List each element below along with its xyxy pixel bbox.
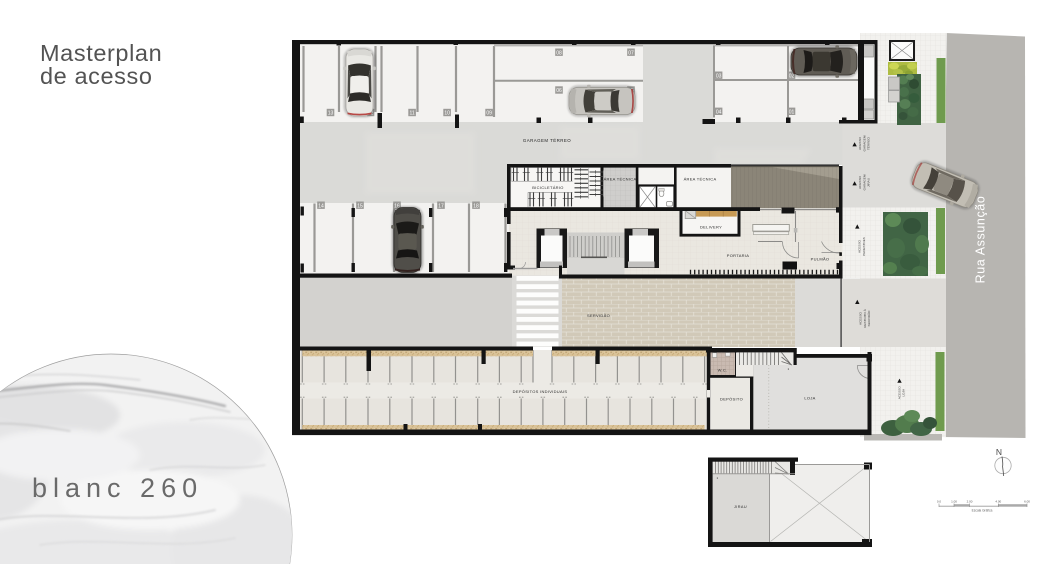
svg-text:Rua Assunção: Rua Assunção bbox=[974, 196, 988, 284]
svg-text:07: 07 bbox=[628, 50, 634, 56]
svg-text:11: 11 bbox=[409, 111, 414, 117]
svg-text:18: 18 bbox=[473, 203, 479, 209]
svg-text:17: 17 bbox=[438, 203, 444, 209]
svg-text:TÉRREO: TÉRREO bbox=[866, 136, 871, 149]
svg-text:SERVIDÃO: SERVIDÃO bbox=[587, 313, 610, 318]
svg-text:LOJA: LOJA bbox=[902, 388, 906, 397]
svg-text:14: 14 bbox=[318, 203, 324, 209]
svg-text:PORTARIA: PORTARIA bbox=[727, 253, 750, 258]
svg-text:SERVIDÃO: SERVIDÃO bbox=[866, 310, 871, 327]
svg-text:04: 04 bbox=[716, 109, 722, 115]
svg-text:ÁREA TÉCNICA: ÁREA TÉCNICA bbox=[604, 177, 637, 182]
svg-text:DEPÓSITO: DEPÓSITO bbox=[720, 397, 743, 402]
svg-text:GARAGEM TÉRREO: GARAGEM TÉRREO bbox=[523, 138, 571, 143]
svg-text:JIRAU: JIRAU bbox=[734, 505, 747, 509]
svg-text:JIRAU: JIRAU bbox=[867, 178, 871, 187]
svg-text:0.0: 0.0 bbox=[937, 500, 942, 504]
svg-text:Escala Gráfica: Escala Gráfica bbox=[972, 509, 993, 513]
svg-text:10: 10 bbox=[444, 111, 450, 117]
svg-text:blanc 260: blanc 260 bbox=[32, 473, 203, 503]
svg-text:PULMÃO: PULMÃO bbox=[811, 257, 830, 262]
svg-text:2.00: 2.00 bbox=[967, 500, 973, 504]
svg-text:15: 15 bbox=[357, 203, 363, 209]
svg-text:1.00: 1.00 bbox=[951, 500, 957, 504]
svg-text:DEPÓSITOS INDIVIDUAIS: DEPÓSITOS INDIVIDUAIS bbox=[513, 389, 568, 394]
svg-text:06: 06 bbox=[556, 88, 562, 94]
svg-text:09: 09 bbox=[486, 111, 492, 117]
svg-text:01: 01 bbox=[789, 109, 795, 115]
svg-text:03: 03 bbox=[716, 73, 722, 79]
svg-text:BICICLETÁRIO: BICICLETÁRIO bbox=[532, 185, 563, 190]
svg-text:6.00: 6.00 bbox=[1024, 500, 1030, 504]
svg-text:PEDESTRES: PEDESTRES bbox=[862, 237, 866, 256]
svg-text:08: 08 bbox=[556, 50, 562, 56]
svg-text:N: N bbox=[996, 447, 1002, 457]
svg-text:13: 13 bbox=[328, 111, 334, 117]
svg-text:de acesso: de acesso bbox=[40, 63, 153, 89]
svg-text:LOJA: LOJA bbox=[804, 396, 815, 401]
svg-text:W.C.: W.C. bbox=[718, 368, 728, 373]
svg-text:ÁREA TÉCNICA: ÁREA TÉCNICA bbox=[684, 177, 717, 182]
svg-text:4.00: 4.00 bbox=[995, 500, 1001, 504]
